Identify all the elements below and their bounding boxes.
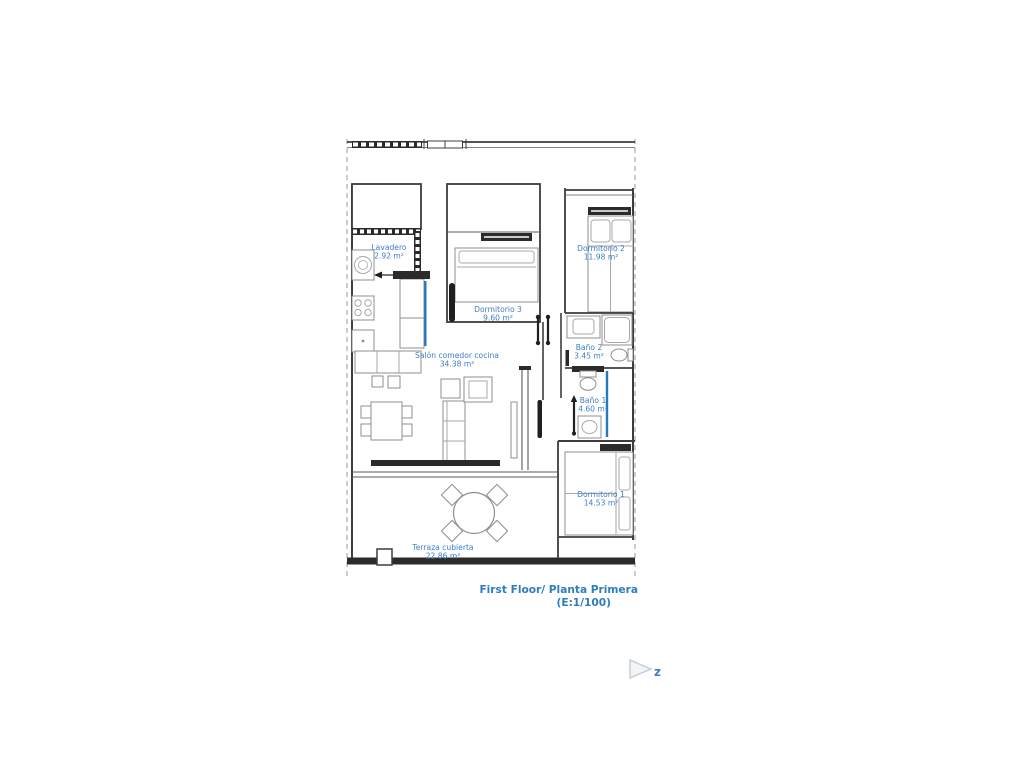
door-pin-bano-1 (571, 395, 577, 436)
room-area: 4.60 m² (578, 405, 608, 414)
door-leaf-dormitorio-3 (449, 283, 455, 322)
room-label-dormitorio-2: Dormitorio 2 11.98 m² (577, 244, 625, 262)
room-label-lavadero: Lavadero 2.92 m² (371, 243, 406, 261)
plan-title-line2: (E:1/100) (556, 597, 611, 609)
toilet-bano-2 (611, 349, 633, 361)
tv-unit (511, 402, 517, 458)
floor-plan-drawing: Lavadero 2.92 m² Dormitorio 3 9.60 m² Do… (0, 0, 1024, 768)
room-label-salon: Salón comedor cocina 34.38 m² (415, 351, 499, 369)
room-area: 11.98 m² (584, 253, 619, 262)
bed-dormitorio-3 (455, 248, 538, 302)
kitchen-island (374, 271, 430, 348)
room-area: 34.38 m² (440, 360, 475, 369)
room-area: 22.86 m² (426, 552, 461, 561)
room-area: 9.60 m² (483, 314, 513, 323)
bed-dormitorio-2 (588, 216, 633, 312)
top-wall (347, 139, 635, 149)
plan-title-line1: First Floor/ Planta Primera (479, 584, 638, 596)
toilet-bano-1 (580, 371, 596, 390)
armchair (464, 377, 492, 402)
hood-arrow-icon (374, 272, 382, 279)
room-label-bano-1: Baño 1 4.60 m² (578, 396, 608, 414)
room-area: 2.92 m² (374, 252, 404, 261)
room-label-bano-2: Baño 2 3.45 m² (574, 343, 604, 361)
room-area: 3.45 m² (574, 352, 604, 361)
room-label-dormitorio-1: Dormitorio 1 14.53 m² (577, 490, 625, 508)
watermark-arrow-icon (630, 660, 651, 678)
plan-title: First Floor/ Planta Primera (E:1/100) (479, 584, 638, 609)
room-dormitorio-3 (447, 184, 540, 322)
floor-plan-page: Lavadero 2.92 m² Dormitorio 3 9.60 m² Do… (0, 0, 1024, 768)
watermark: z (630, 660, 661, 679)
dining-table (361, 402, 412, 440)
door-leaf-dormitorio-1 (538, 400, 543, 438)
kitchen-counter (355, 351, 421, 388)
sink-bano-1 (578, 416, 601, 438)
room-area: 14.53 m² (584, 499, 619, 508)
side-table (441, 379, 460, 398)
watermark-letter: z (654, 665, 661, 679)
sofa (443, 401, 465, 461)
kitchen-fixtures (352, 250, 374, 352)
terrace-pillar (377, 549, 392, 565)
